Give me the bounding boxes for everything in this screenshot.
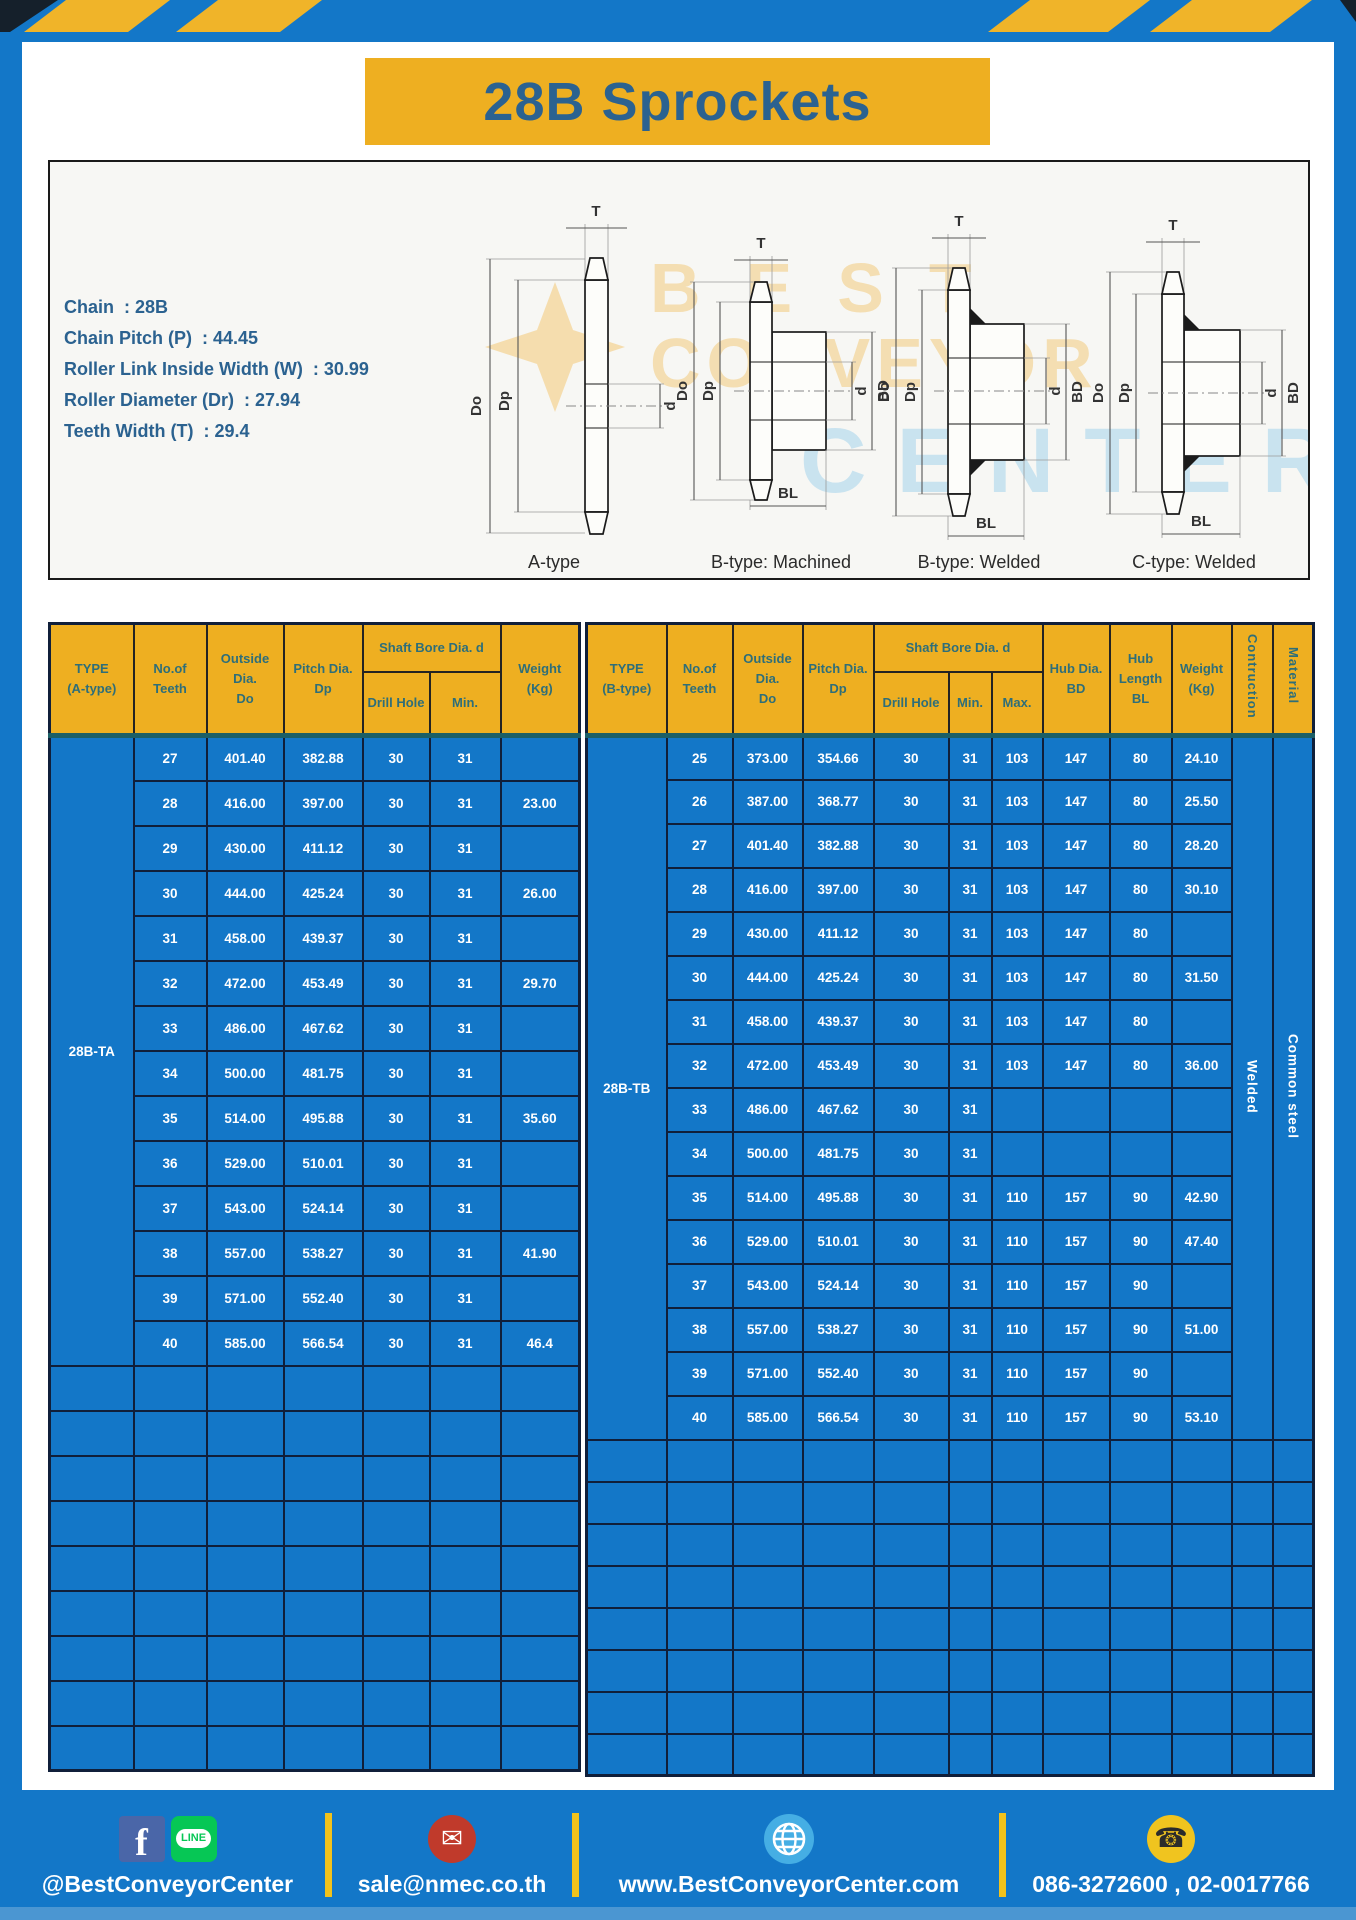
column-header-min: Min. (949, 672, 992, 736)
data-cell: 387.00 (733, 780, 803, 824)
empty-cell (733, 1650, 803, 1692)
data-cell: 157 (1043, 1352, 1110, 1396)
empty-cell (992, 1650, 1043, 1692)
data-cell: 103 (992, 956, 1043, 1000)
empty-cell (1172, 1524, 1232, 1566)
data-cell: 80 (1110, 736, 1172, 780)
page-frame-left (0, 42, 22, 1790)
data-cell: 430.00 (207, 826, 284, 871)
empty-cell (733, 1482, 803, 1524)
empty-cell (803, 1734, 874, 1776)
empty-cell (667, 1608, 733, 1650)
empty-cell (874, 1650, 949, 1692)
data-cell: 439.37 (803, 1000, 874, 1044)
column-header-max: Max. (992, 672, 1043, 736)
table-row: 38557.00538.2730311101579051.00 (587, 1308, 1314, 1352)
data-cell: 147 (1043, 1000, 1110, 1044)
data-cell: 31 (949, 956, 992, 1000)
dim-label-t: T (756, 235, 765, 252)
data-cell (992, 1132, 1043, 1176)
footer-divider (572, 1813, 579, 1897)
dim-label-t: T (591, 203, 600, 220)
b-type-table-wrap: TYPE (B-type) No.of Teeth Outside Dia. D… (585, 622, 1315, 1777)
data-cell: 30 (667, 956, 733, 1000)
data-cell: 30 (874, 1044, 949, 1088)
empty-cell (207, 1546, 284, 1591)
dim-label-t: T (1168, 217, 1177, 234)
table-row: 37543.00524.14303111015790 (587, 1264, 1314, 1308)
empty-row (50, 1591, 580, 1636)
empty-cell (1232, 1524, 1273, 1566)
table-row: 40585.00566.5430311101579053.10 (587, 1396, 1314, 1440)
empty-row (50, 1411, 580, 1456)
sprocket-diagram-c-welded: T Do Dp d BD BL C-type: Welded (1090, 217, 1302, 572)
data-cell: 51.00 (1172, 1308, 1232, 1352)
data-cell: 467.62 (803, 1088, 874, 1132)
data-cell (1110, 1088, 1172, 1132)
data-cell: 27 (667, 824, 733, 868)
data-cell (501, 1186, 580, 1231)
column-header-outside-dia: Outside Dia. Do (733, 624, 803, 736)
data-cell: 30 (363, 871, 430, 916)
data-cell: 80 (1110, 1044, 1172, 1088)
empty-cell (284, 1411, 363, 1456)
empty-cell (587, 1650, 667, 1692)
data-cell: 26 (667, 780, 733, 824)
empty-cell (733, 1440, 803, 1482)
empty-row (50, 1636, 580, 1681)
social-handle: @BestConveyorCenter (42, 1871, 293, 1898)
data-cell: 31 (949, 1044, 992, 1088)
data-cell: 31 (430, 1051, 501, 1096)
dim-label-d: d (853, 386, 870, 395)
column-header-material: Material (1273, 624, 1314, 736)
data-cell: 30 (363, 736, 430, 781)
empty-cell (1110, 1734, 1172, 1776)
data-cell (1110, 1132, 1172, 1176)
empty-cell (733, 1566, 803, 1608)
data-cell: 147 (1043, 736, 1110, 780)
empty-cell (50, 1501, 134, 1546)
data-cell: 36.00 (1172, 1044, 1232, 1088)
empty-cell (363, 1546, 430, 1591)
empty-cell (1273, 1566, 1314, 1608)
column-header-teeth: No.of Teeth (134, 624, 207, 736)
table-row: 28B-TB25373.00354.6630311031478024.10Wel… (587, 736, 1314, 780)
empty-cell (134, 1681, 207, 1726)
data-cell: 29.70 (501, 961, 580, 1006)
empty-cell (803, 1650, 874, 1692)
empty-cell (1232, 1692, 1273, 1734)
empty-cell (587, 1566, 667, 1608)
data-cell: 30 (134, 871, 207, 916)
data-cell: 157 (1043, 1264, 1110, 1308)
data-cell: 41.90 (501, 1231, 580, 1276)
empty-cell (949, 1650, 992, 1692)
data-cell (1172, 1088, 1232, 1132)
empty-cell (667, 1524, 733, 1566)
data-cell: 90 (1110, 1308, 1172, 1352)
data-cell: 90 (1110, 1396, 1172, 1440)
empty-cell (1172, 1650, 1232, 1692)
data-cell: 416.00 (733, 868, 803, 912)
dim-label-do: Do (468, 396, 485, 416)
empty-cell (874, 1692, 949, 1734)
empty-row (50, 1456, 580, 1501)
empty-cell (134, 1366, 207, 1411)
empty-row (587, 1440, 1314, 1482)
data-cell: 30.10 (1172, 868, 1232, 912)
data-cell: 31 (949, 1088, 992, 1132)
data-cell: 110 (992, 1264, 1043, 1308)
data-cell: 571.00 (733, 1352, 803, 1396)
empty-cell (949, 1524, 992, 1566)
data-cell (501, 916, 580, 961)
data-cell: 401.40 (207, 736, 284, 781)
data-cell: 110 (992, 1308, 1043, 1352)
column-header-weight: Weight (Kg) (501, 624, 580, 736)
empty-cell (363, 1726, 430, 1771)
data-cell (501, 1051, 580, 1096)
data-cell: 90 (1110, 1220, 1172, 1264)
empty-cell (992, 1734, 1043, 1776)
data-cell: 39 (667, 1352, 733, 1396)
catalog-page: 28B Sprockets BEST CONVEYOR CENTER (0, 0, 1356, 1920)
empty-cell (430, 1726, 501, 1771)
data-cell: 25.50 (1172, 780, 1232, 824)
empty-cell (1043, 1524, 1110, 1566)
empty-cell (363, 1411, 430, 1456)
data-cell: 481.75 (803, 1132, 874, 1176)
empty-row (50, 1546, 580, 1591)
empty-cell (949, 1692, 992, 1734)
data-cell: 467.62 (284, 1006, 363, 1051)
contact-footer: f LINE @BestConveyorCenter ✉ sale@nmec.c… (0, 1790, 1356, 1920)
phone-icon: ☎ (1147, 1815, 1195, 1863)
empty-cell (501, 1726, 580, 1771)
empty-cell (1273, 1524, 1314, 1566)
data-cell: 157 (1043, 1308, 1110, 1352)
empty-cell (430, 1456, 501, 1501)
empty-cell (1232, 1608, 1273, 1650)
page-title: 28B Sprockets (483, 71, 871, 133)
data-cell: 543.00 (207, 1186, 284, 1231)
data-cell: 31 (949, 1000, 992, 1044)
facebook-icon: f (119, 1816, 165, 1862)
data-cell: 31 (134, 916, 207, 961)
data-cell: 35 (134, 1096, 207, 1141)
empty-cell (1110, 1440, 1172, 1482)
data-cell: 36 (134, 1141, 207, 1186)
empty-cell (1110, 1482, 1172, 1524)
empty-cell (667, 1734, 733, 1776)
a-type-table-wrap: TYPE (A-type) No.of Teeth Outside Dia. D… (48, 622, 581, 1772)
empty-cell (1110, 1566, 1172, 1608)
empty-cell (587, 1440, 667, 1482)
empty-cell (1273, 1650, 1314, 1692)
empty-cell (501, 1366, 580, 1411)
data-cell: 37 (667, 1264, 733, 1308)
data-cell: 368.77 (803, 780, 874, 824)
empty-cell (1043, 1482, 1110, 1524)
empty-cell (1172, 1608, 1232, 1650)
data-cell: 373.00 (733, 736, 803, 780)
empty-cell (430, 1681, 501, 1726)
empty-row (587, 1734, 1314, 1776)
empty-cell (1043, 1566, 1110, 1608)
top-hazard-band (0, 0, 1356, 42)
data-cell: 585.00 (207, 1321, 284, 1366)
data-cell: 514.00 (207, 1096, 284, 1141)
data-cell (501, 1006, 580, 1051)
empty-cell (874, 1524, 949, 1566)
data-cell: 80 (1110, 868, 1172, 912)
column-header-shaft-bore: Shaft Bore Dia. d (874, 624, 1043, 672)
data-cell: 103 (992, 780, 1043, 824)
dim-label-dp: Dp (902, 382, 919, 402)
data-cell: 31 (949, 824, 992, 868)
footer-divider (999, 1813, 1006, 1897)
column-header-type: TYPE (A-type) (50, 624, 134, 736)
empty-cell (50, 1411, 134, 1456)
empty-cell (949, 1482, 992, 1524)
data-cell: 529.00 (207, 1141, 284, 1186)
empty-cell (284, 1501, 363, 1546)
empty-cell (1172, 1734, 1232, 1776)
data-cell: 382.88 (284, 736, 363, 781)
data-cell: 80 (1110, 824, 1172, 868)
data-cell: 31 (430, 1231, 501, 1276)
empty-cell (874, 1482, 949, 1524)
data-cell: 31 (430, 871, 501, 916)
empty-cell (134, 1411, 207, 1456)
empty-cell (430, 1411, 501, 1456)
dim-label-do: Do (674, 381, 691, 401)
data-cell: 495.88 (284, 1096, 363, 1141)
data-cell (1043, 1132, 1110, 1176)
data-cell: 571.00 (207, 1276, 284, 1321)
diagram-type-label: C-type: Welded (1132, 552, 1256, 572)
empty-cell (134, 1636, 207, 1681)
empty-cell (992, 1440, 1043, 1482)
data-cell: 147 (1043, 780, 1110, 824)
empty-cell (134, 1456, 207, 1501)
email-address: sale@nmec.co.th (358, 1871, 547, 1898)
empty-cell (207, 1681, 284, 1726)
empty-cell (803, 1440, 874, 1482)
data-cell: 30 (363, 916, 430, 961)
data-cell: 147 (1043, 824, 1110, 868)
footer-bottom-strip (0, 1907, 1356, 1920)
data-cell: 30 (874, 1088, 949, 1132)
data-cell: 430.00 (733, 912, 803, 956)
data-cell: 31 (430, 916, 501, 961)
data-cell: 90 (1110, 1264, 1172, 1308)
empty-cell (949, 1734, 992, 1776)
empty-cell (587, 1692, 667, 1734)
data-cell: 103 (992, 824, 1043, 868)
data-cell (501, 1276, 580, 1321)
data-cell: 30 (363, 1276, 430, 1321)
empty-cell (1110, 1692, 1172, 1734)
column-header-teeth: No.of Teeth (667, 624, 733, 736)
data-cell: 514.00 (733, 1176, 803, 1220)
empty-cell (50, 1726, 134, 1771)
spec-chain-pitch: Chain Pitch (P) : 44.45 (64, 323, 369, 354)
data-cell: 80 (1110, 1000, 1172, 1044)
data-cell: 110 (992, 1352, 1043, 1396)
data-cell: 458.00 (733, 1000, 803, 1044)
data-cell: 29 (667, 912, 733, 956)
empty-cell (1043, 1650, 1110, 1692)
data-cell: 40 (667, 1396, 733, 1440)
empty-row (50, 1681, 580, 1726)
empty-cell (803, 1608, 874, 1650)
data-cell: 543.00 (733, 1264, 803, 1308)
empty-cell (501, 1411, 580, 1456)
data-cell: 28 (667, 868, 733, 912)
data-cell: 30 (363, 1051, 430, 1096)
data-cell: 103 (992, 1044, 1043, 1088)
data-cell: 31 (430, 1006, 501, 1051)
data-cell: 39 (134, 1276, 207, 1321)
empty-cell (1273, 1692, 1314, 1734)
data-cell: 34 (667, 1132, 733, 1176)
empty-row (587, 1482, 1314, 1524)
data-cell: 31 (949, 780, 992, 824)
data-cell: 30 (874, 1264, 949, 1308)
data-cell: 538.27 (803, 1308, 874, 1352)
empty-cell (207, 1636, 284, 1681)
data-cell: 80 (1110, 780, 1172, 824)
data-cell: 31 (430, 1186, 501, 1231)
data-cell: 31 (430, 1321, 501, 1366)
data-cell: 37 (134, 1186, 207, 1231)
data-cell: 30 (363, 1186, 430, 1231)
type-cell: 28B-TB (587, 736, 667, 1440)
empty-cell (733, 1608, 803, 1650)
data-cell: 397.00 (284, 781, 363, 826)
data-cell: 32 (134, 961, 207, 1006)
empty-cell (50, 1681, 134, 1726)
dim-label-d: d (662, 401, 679, 410)
empty-cell (501, 1546, 580, 1591)
data-cell: 31 (949, 1132, 992, 1176)
empty-cell (803, 1692, 874, 1734)
data-cell: 486.00 (207, 1006, 284, 1051)
data-cell: 23.00 (501, 781, 580, 826)
empty-cell (587, 1734, 667, 1776)
data-cell (1043, 1088, 1110, 1132)
data-cell: 30 (874, 736, 949, 780)
empty-cell (501, 1456, 580, 1501)
data-cell: 157 (1043, 1220, 1110, 1264)
data-cell: 110 (992, 1396, 1043, 1440)
data-cell: 444.00 (207, 871, 284, 916)
empty-cell (1232, 1734, 1273, 1776)
empty-cell (992, 1608, 1043, 1650)
empty-cell (587, 1482, 667, 1524)
data-cell: 31 (430, 826, 501, 871)
data-cell: 147 (1043, 1044, 1110, 1088)
empty-cell (501, 1591, 580, 1636)
empty-cell (949, 1566, 992, 1608)
data-cell: 500.00 (733, 1132, 803, 1176)
empty-cell (803, 1482, 874, 1524)
data-cell: 31 (430, 961, 501, 1006)
data-cell: 552.40 (803, 1352, 874, 1396)
empty-cell (207, 1456, 284, 1501)
data-cell: 453.49 (803, 1044, 874, 1088)
page-frame-right (1334, 42, 1356, 1790)
footer-divider (325, 1813, 332, 1897)
empty-cell (1273, 1608, 1314, 1650)
data-cell: 103 (992, 912, 1043, 956)
table-row: 31458.00439.37303110314780 (587, 1000, 1314, 1044)
line-icon: LINE (171, 1816, 217, 1862)
empty-cell (949, 1608, 992, 1650)
data-cell: 30 (363, 1141, 430, 1186)
empty-cell (50, 1636, 134, 1681)
column-header-type: TYPE (B-type) (587, 624, 667, 736)
empty-cell (874, 1440, 949, 1482)
data-cell: 30 (874, 956, 949, 1000)
empty-cell (430, 1546, 501, 1591)
empty-cell (992, 1482, 1043, 1524)
empty-cell (1172, 1440, 1232, 1482)
empty-cell (284, 1591, 363, 1636)
data-cell: 354.66 (803, 736, 874, 780)
empty-cell (992, 1524, 1043, 1566)
dim-label-bl: BL (976, 515, 996, 532)
data-cell: 32 (667, 1044, 733, 1088)
empty-cell (430, 1366, 501, 1411)
empty-cell (1110, 1524, 1172, 1566)
empty-row (587, 1524, 1314, 1566)
empty-cell (284, 1456, 363, 1501)
data-cell: 425.24 (803, 956, 874, 1000)
data-cell: 30 (874, 1000, 949, 1044)
table-row: 26387.00368.7730311031478025.50 (587, 780, 1314, 824)
data-cell: 30 (874, 1176, 949, 1220)
data-cell: 38 (667, 1308, 733, 1352)
empty-row (50, 1366, 580, 1411)
empty-cell (803, 1524, 874, 1566)
footer-website-section: www.BestConveyorCenter.com (579, 1813, 999, 1898)
empty-cell (363, 1681, 430, 1726)
empty-cell (1110, 1608, 1172, 1650)
empty-cell (667, 1566, 733, 1608)
data-cell: 30 (874, 824, 949, 868)
data-cell: 30 (363, 781, 430, 826)
data-cell: 31.50 (1172, 956, 1232, 1000)
data-cell: 566.54 (284, 1321, 363, 1366)
column-header-shaft-bore: Shaft Bore Dia. d (363, 624, 501, 672)
sprocket-diagram-a-type: T Do Dp d A-type (468, 203, 679, 572)
empty-cell (1232, 1440, 1273, 1482)
data-cell (501, 1141, 580, 1186)
data-cell: 157 (1043, 1176, 1110, 1220)
data-cell: 538.27 (284, 1231, 363, 1276)
data-cell: 110 (992, 1176, 1043, 1220)
data-cell: 486.00 (733, 1088, 803, 1132)
dim-label-dp: Dp (1116, 383, 1133, 403)
data-cell: 30 (874, 780, 949, 824)
data-cell: 31 (430, 1276, 501, 1321)
data-cell: 30 (363, 1096, 430, 1141)
data-cell: 31 (949, 736, 992, 780)
data-cell: 38 (134, 1231, 207, 1276)
